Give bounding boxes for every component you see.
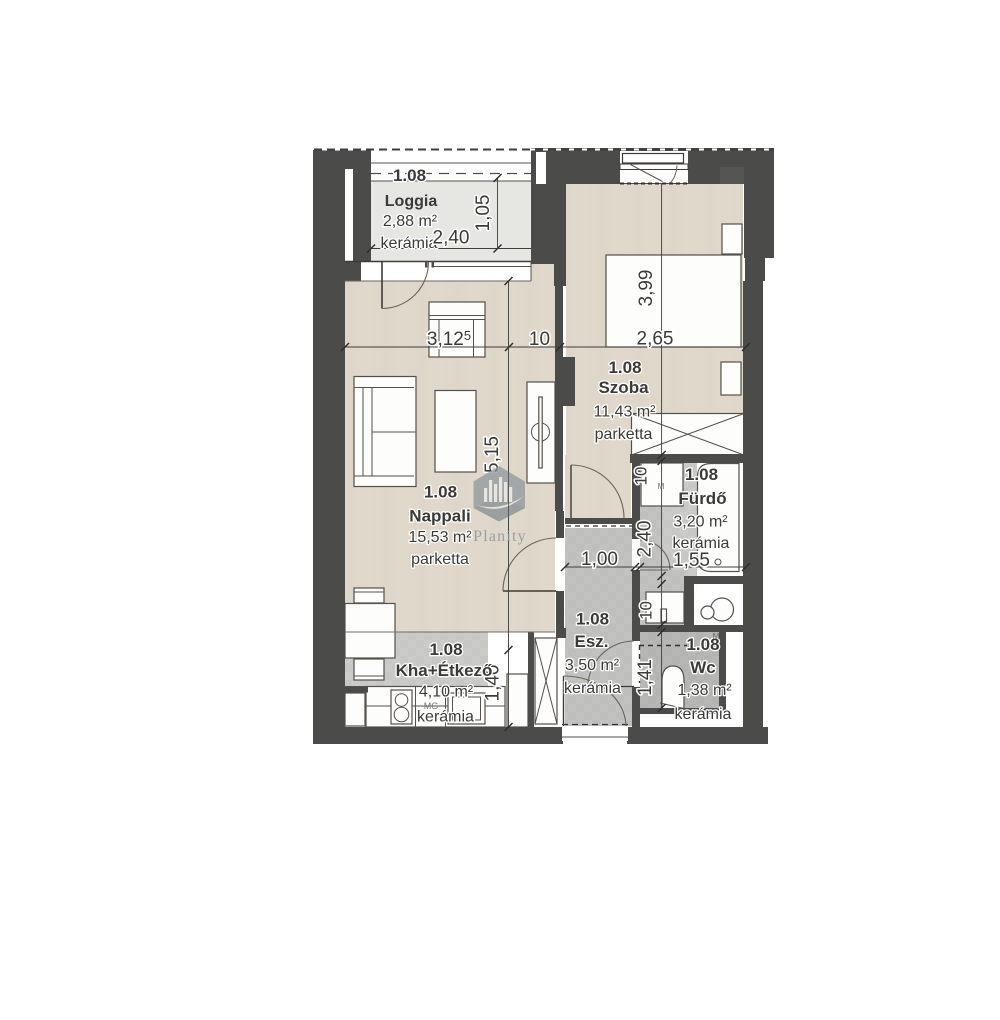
svg-text:Planity: Planity [473,528,527,545]
svg-text:Kha+Étkező: Kha+Étkező [396,661,493,680]
svg-text:3,20 m²: 3,20 m² [673,514,728,531]
svg-text:1,55: 1,55 [673,550,710,571]
svg-text:Loggia: Loggia [385,193,438,210]
svg-text:M: M [658,482,665,491]
svg-text:1.08: 1.08 [576,610,609,629]
svg-text:M: M [713,632,720,641]
svg-text:Nappali: Nappali [409,507,470,526]
svg-text:1.08: 1.08 [685,465,718,484]
svg-text:Esz.: Esz. [574,632,608,651]
svg-text:1.08: 1.08 [393,166,426,185]
svg-text:parketta: parketta [595,426,653,443]
svg-text:MG: MG [424,701,439,711]
svg-text:10: 10 [632,467,651,486]
svg-text:15,53 m²: 15,53 m² [408,529,472,546]
svg-text:2,40: 2,40 [433,228,470,249]
svg-text:1,05: 1,05 [473,195,494,232]
svg-text:4,10 m²: 4,10 m² [419,684,474,701]
svg-text:1,00: 1,00 [581,549,618,570]
svg-text:kerámia: kerámia [417,709,474,726]
svg-text:3,99: 3,99 [636,270,657,307]
svg-text:1.08: 1.08 [424,483,457,502]
svg-text:parketta: parketta [411,551,469,568]
svg-text:2,65: 2,65 [637,329,674,350]
svg-text:2,88 m²: 2,88 m² [383,213,438,230]
svg-text:kerámia: kerámia [675,706,732,723]
svg-text:1.08: 1.08 [429,640,462,659]
svg-text:10: 10 [529,329,550,350]
svg-text:Fürdő: Fürdő [678,489,726,508]
svg-text:2,40: 2,40 [635,521,656,558]
svg-text:1,41: 1,41 [635,659,656,696]
svg-text:3,50 m²: 3,50 m² [565,657,620,674]
svg-text:10: 10 [637,601,656,620]
svg-text:kerámia: kerámia [381,235,438,252]
svg-text:1,38 m²: 1,38 m² [677,682,732,699]
svg-text:kerámia: kerámia [564,680,621,697]
svg-text:11,43 m²: 11,43 m² [594,404,657,421]
svg-text:1.08: 1.08 [608,358,641,377]
svg-text:Wc: Wc [690,658,716,677]
svg-text:Szoba: Szoba [598,378,649,397]
